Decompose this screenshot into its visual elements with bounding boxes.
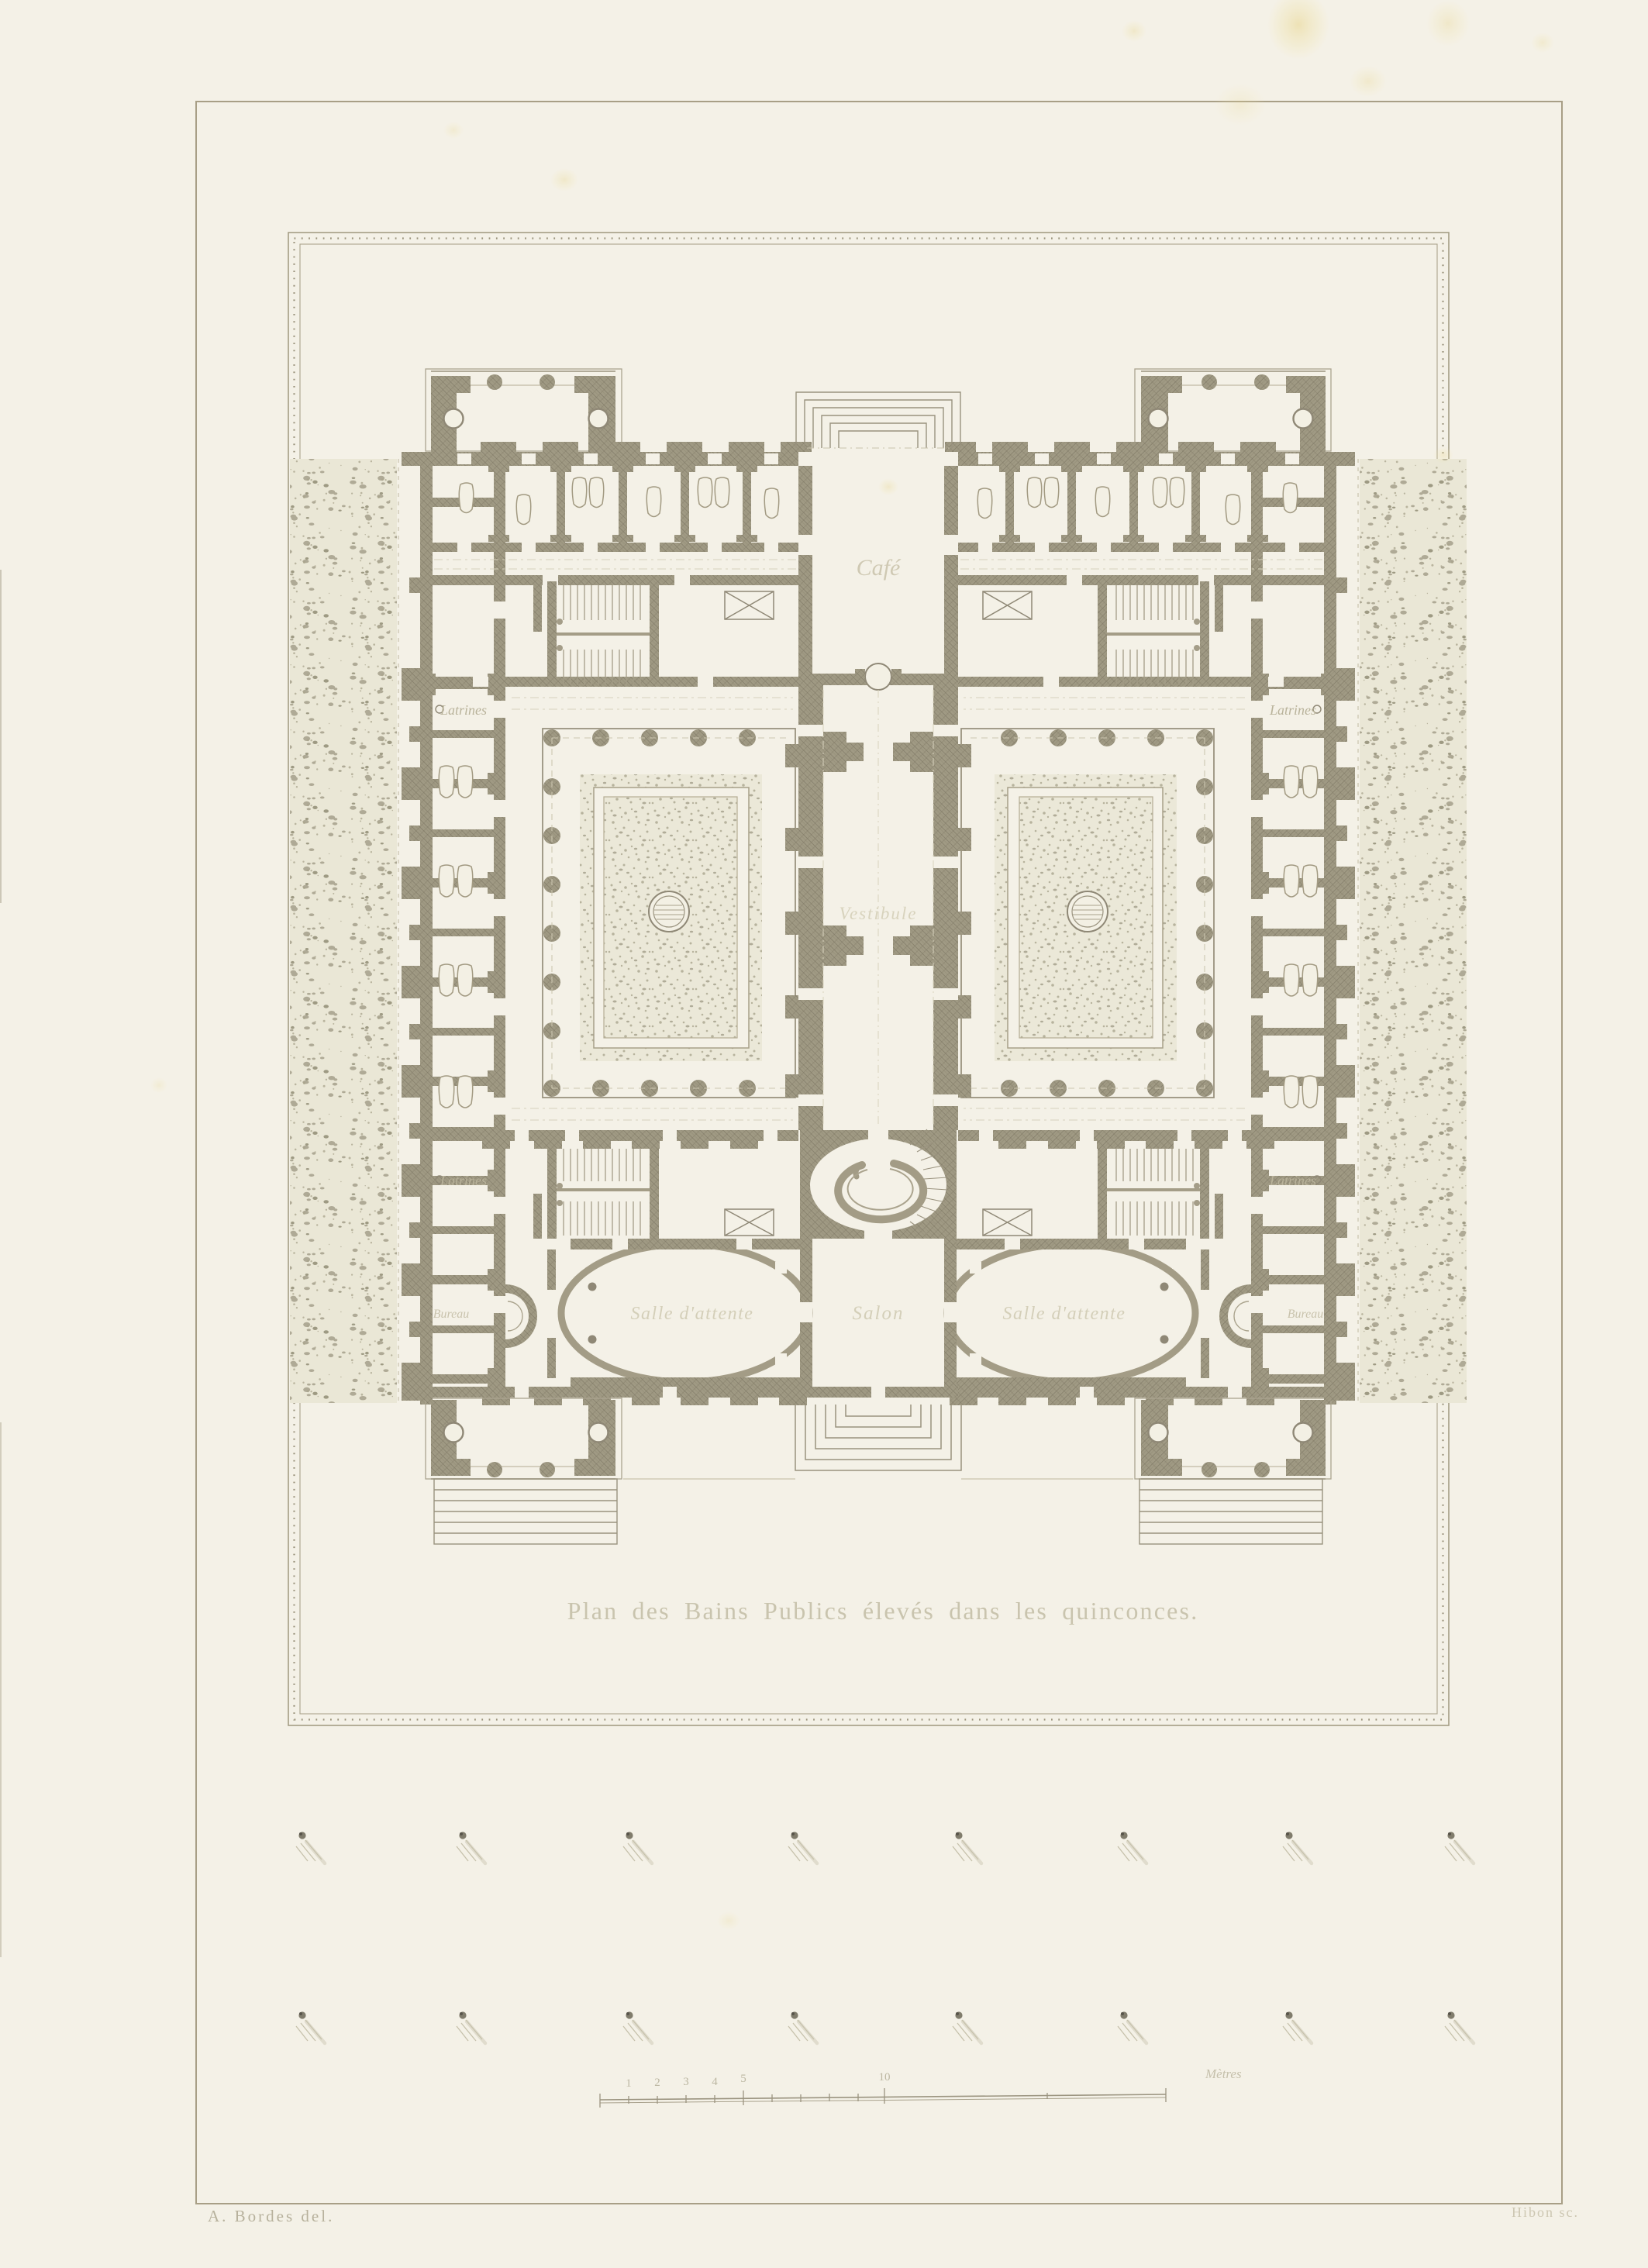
svg-text:Latrines: Latrines [440,702,487,718]
svg-text:Vestibule: Vestibule [839,904,917,923]
svg-text:Latrines: Latrines [440,1173,487,1188]
svg-text:A. Bordes del.: A. Bordes del. [208,2207,334,2225]
svg-text:Salle d'attente: Salle d'attente [1003,1304,1126,1324]
svg-text:Hibon sc.: Hibon sc. [1512,2204,1579,2220]
svg-text:Salon: Salon [853,1303,905,1324]
svg-text:Café: Café [857,555,902,581]
svg-text:Plan des Bains Publics élevés: Plan des Bains Publics élevés dans les q… [567,1597,1199,1625]
svg-text:2: 2 [654,2077,660,2089]
svg-text:Latrines: Latrines [1269,702,1316,718]
svg-text:3: 3 [683,2076,689,2088]
svg-text:4: 4 [712,2076,718,2088]
svg-text:5: 5 [740,2073,746,2085]
svg-text:Latrines: Latrines [1269,1173,1316,1188]
svg-text:1: 1 [626,2077,632,2090]
svg-text:Mètres: Mètres [1205,2066,1242,2081]
svg-text:10: 10 [879,2071,891,2084]
svg-text:Salle d'attente: Salle d'attente [631,1304,754,1324]
svg-text:Bureau: Bureau [1288,1308,1324,1321]
svg-text:Bureau: Bureau [433,1308,470,1321]
